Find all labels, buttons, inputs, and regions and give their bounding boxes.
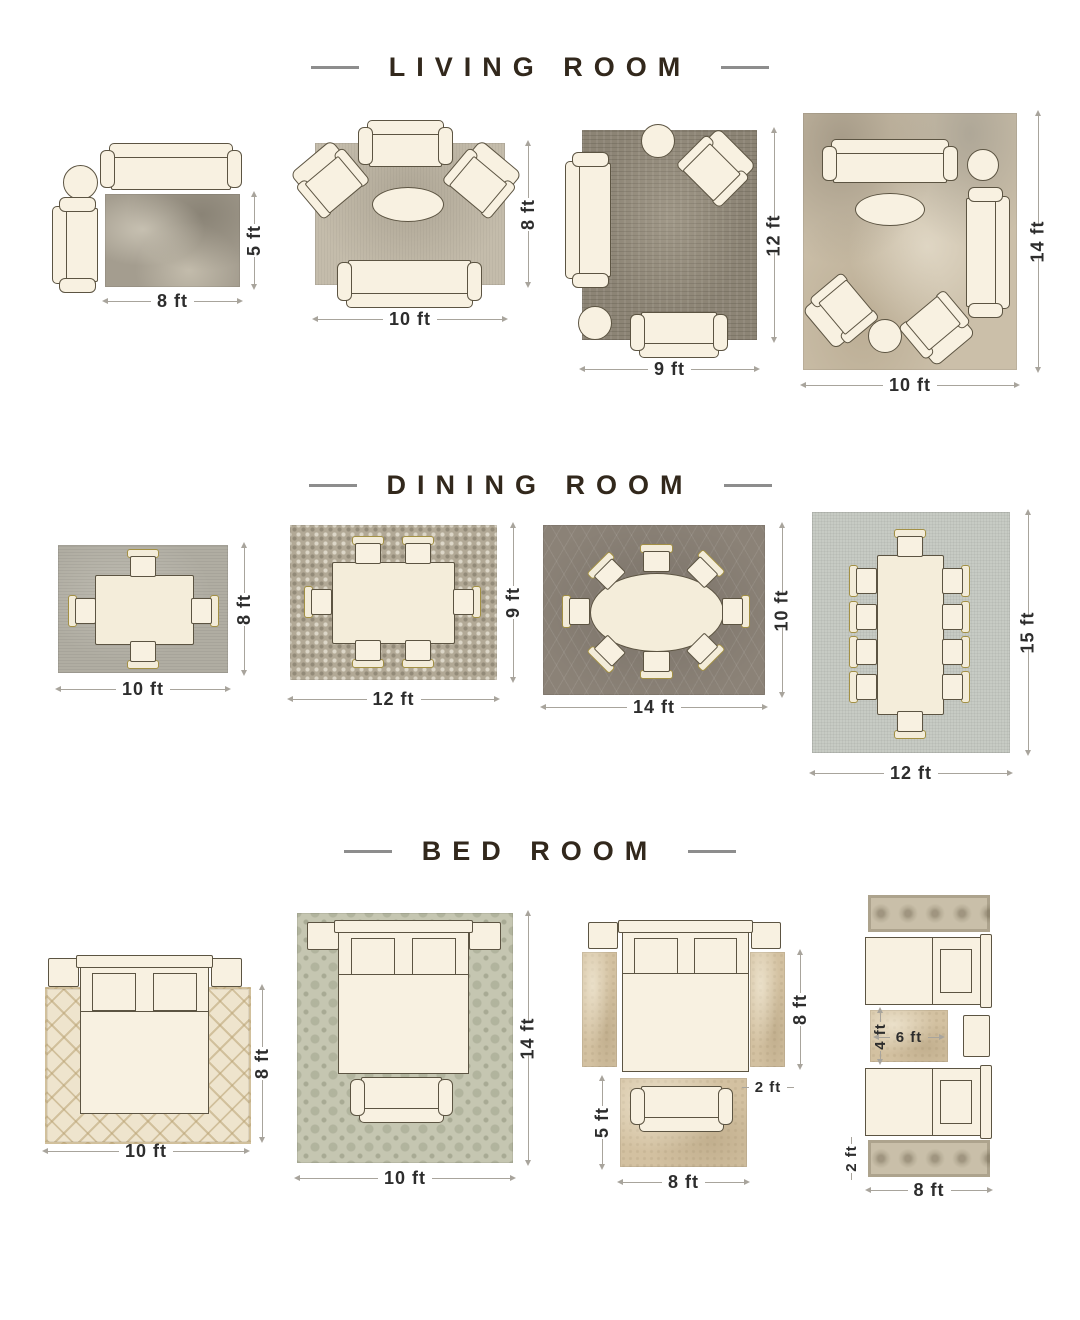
- dining-chair: [896, 711, 924, 737]
- dining-chair: [404, 538, 432, 564]
- section-title: DINING ROOM: [387, 470, 694, 501]
- dining-chair: [354, 640, 382, 666]
- section-header-dining-room: DINING ROOM: [0, 470, 1080, 501]
- height-label: 14 ft: [1028, 220, 1049, 262]
- width-label: 12 ft: [373, 689, 415, 710]
- section-header-living-room: LIVING ROOM: [0, 52, 1080, 83]
- header-dash-left: [311, 66, 359, 69]
- height-label: 8 ft: [518, 199, 539, 230]
- loveseat: [358, 120, 453, 167]
- runner-height-label: 2 ft: [843, 1145, 860, 1172]
- dining-chair: [306, 588, 332, 616]
- dining-chair: [896, 531, 924, 557]
- stool: [868, 319, 902, 353]
- height-label: 9 ft: [503, 587, 524, 618]
- runner-rug: [868, 895, 990, 932]
- dining-chair: [129, 641, 157, 667]
- dining-chair: [942, 673, 968, 701]
- height-label: 15 ft: [1018, 611, 1039, 653]
- runner-width-label: 2 ft: [755, 1079, 782, 1096]
- section-header-bed-room: BED ROOM: [0, 836, 1080, 867]
- width-label: 10 ft: [122, 679, 164, 700]
- accent-rug-width-label: 6 ft: [896, 1029, 923, 1046]
- dining-chair: [642, 651, 671, 677]
- runner-rug: [750, 952, 785, 1067]
- header-dash-left: [309, 484, 357, 487]
- dining-chair: [851, 567, 877, 595]
- sofa: [822, 139, 958, 183]
- runner-rug: [582, 952, 617, 1067]
- bed: [622, 922, 749, 1072]
- foot-rug-height-label: 5 ft: [592, 1107, 613, 1138]
- dining-chair: [942, 567, 968, 595]
- bench: [630, 312, 728, 358]
- nightstand: [963, 1015, 990, 1057]
- chaise: [52, 197, 98, 293]
- height-label: 14 ft: [518, 1017, 539, 1059]
- nightstand: [48, 958, 79, 987]
- width-label: 8 ft: [914, 1180, 945, 1201]
- bed-side-label: 8 ft: [790, 994, 811, 1025]
- width-label: 14 ft: [633, 697, 675, 718]
- header-dash-right: [724, 484, 772, 487]
- runner-rug: [868, 1140, 990, 1177]
- dining-chair: [851, 603, 877, 631]
- dining-chair: [453, 588, 479, 616]
- width-label: 9 ft: [654, 359, 685, 380]
- dining-chair: [129, 551, 157, 577]
- dining-chair: [642, 546, 671, 572]
- dining-table: [95, 575, 194, 645]
- twin-bed: [865, 1068, 990, 1136]
- nightstand: [469, 922, 501, 950]
- nightstand: [588, 922, 618, 949]
- width-label: 10 ft: [889, 375, 931, 396]
- header-dash-right: [688, 850, 736, 853]
- dining-table: [332, 562, 455, 644]
- dining-chair: [354, 538, 382, 564]
- dining-chair: [70, 597, 96, 625]
- dining-chair: [722, 597, 748, 626]
- dining-chair: [942, 638, 968, 666]
- oval-coffee-table: [372, 187, 444, 222]
- section-title: LIVING ROOM: [389, 52, 692, 83]
- long-dining-table: [877, 555, 944, 715]
- width-label: 8 ft: [668, 1172, 699, 1193]
- section-title: BED ROOM: [422, 836, 659, 867]
- header-dash-right: [721, 66, 769, 69]
- round-side-table: [641, 124, 675, 158]
- width-label: 12 ft: [890, 763, 932, 784]
- rug-size-guide: LIVING ROOM 8 ft 5 ft: [0, 0, 1080, 1320]
- nightstand: [211, 958, 242, 987]
- width-label: 8 ft: [157, 291, 188, 312]
- header-dash-left: [344, 850, 392, 853]
- height-label: 8 ft: [234, 594, 255, 625]
- width-label: 10 ft: [125, 1141, 167, 1162]
- dining-chair: [564, 597, 590, 626]
- oval-coffee-table: [855, 193, 925, 226]
- sofa: [565, 152, 611, 288]
- dining-chair: [942, 603, 968, 631]
- sofa: [966, 187, 1010, 318]
- round-side-table: [63, 165, 98, 200]
- rug: [105, 194, 240, 287]
- bed: [80, 957, 209, 1114]
- stool: [578, 306, 612, 340]
- dining-chair: [851, 673, 877, 701]
- sofa: [100, 143, 242, 190]
- bed: [338, 922, 469, 1074]
- bench: [350, 1077, 453, 1123]
- height-label: 8 ft: [252, 1048, 273, 1079]
- dining-chair: [191, 597, 217, 625]
- dining-chair: [851, 638, 877, 666]
- width-label: 10 ft: [389, 309, 431, 330]
- nightstand: [751, 922, 781, 949]
- width-label: 10 ft: [384, 1168, 426, 1189]
- round-side-table: [967, 149, 999, 181]
- sofa: [337, 260, 482, 308]
- height-label: 5 ft: [244, 225, 265, 256]
- height-label: 12 ft: [764, 214, 785, 256]
- height-label: 10 ft: [772, 589, 793, 631]
- dining-chair: [404, 640, 432, 666]
- bench: [630, 1086, 733, 1132]
- twin-bed: [865, 937, 990, 1005]
